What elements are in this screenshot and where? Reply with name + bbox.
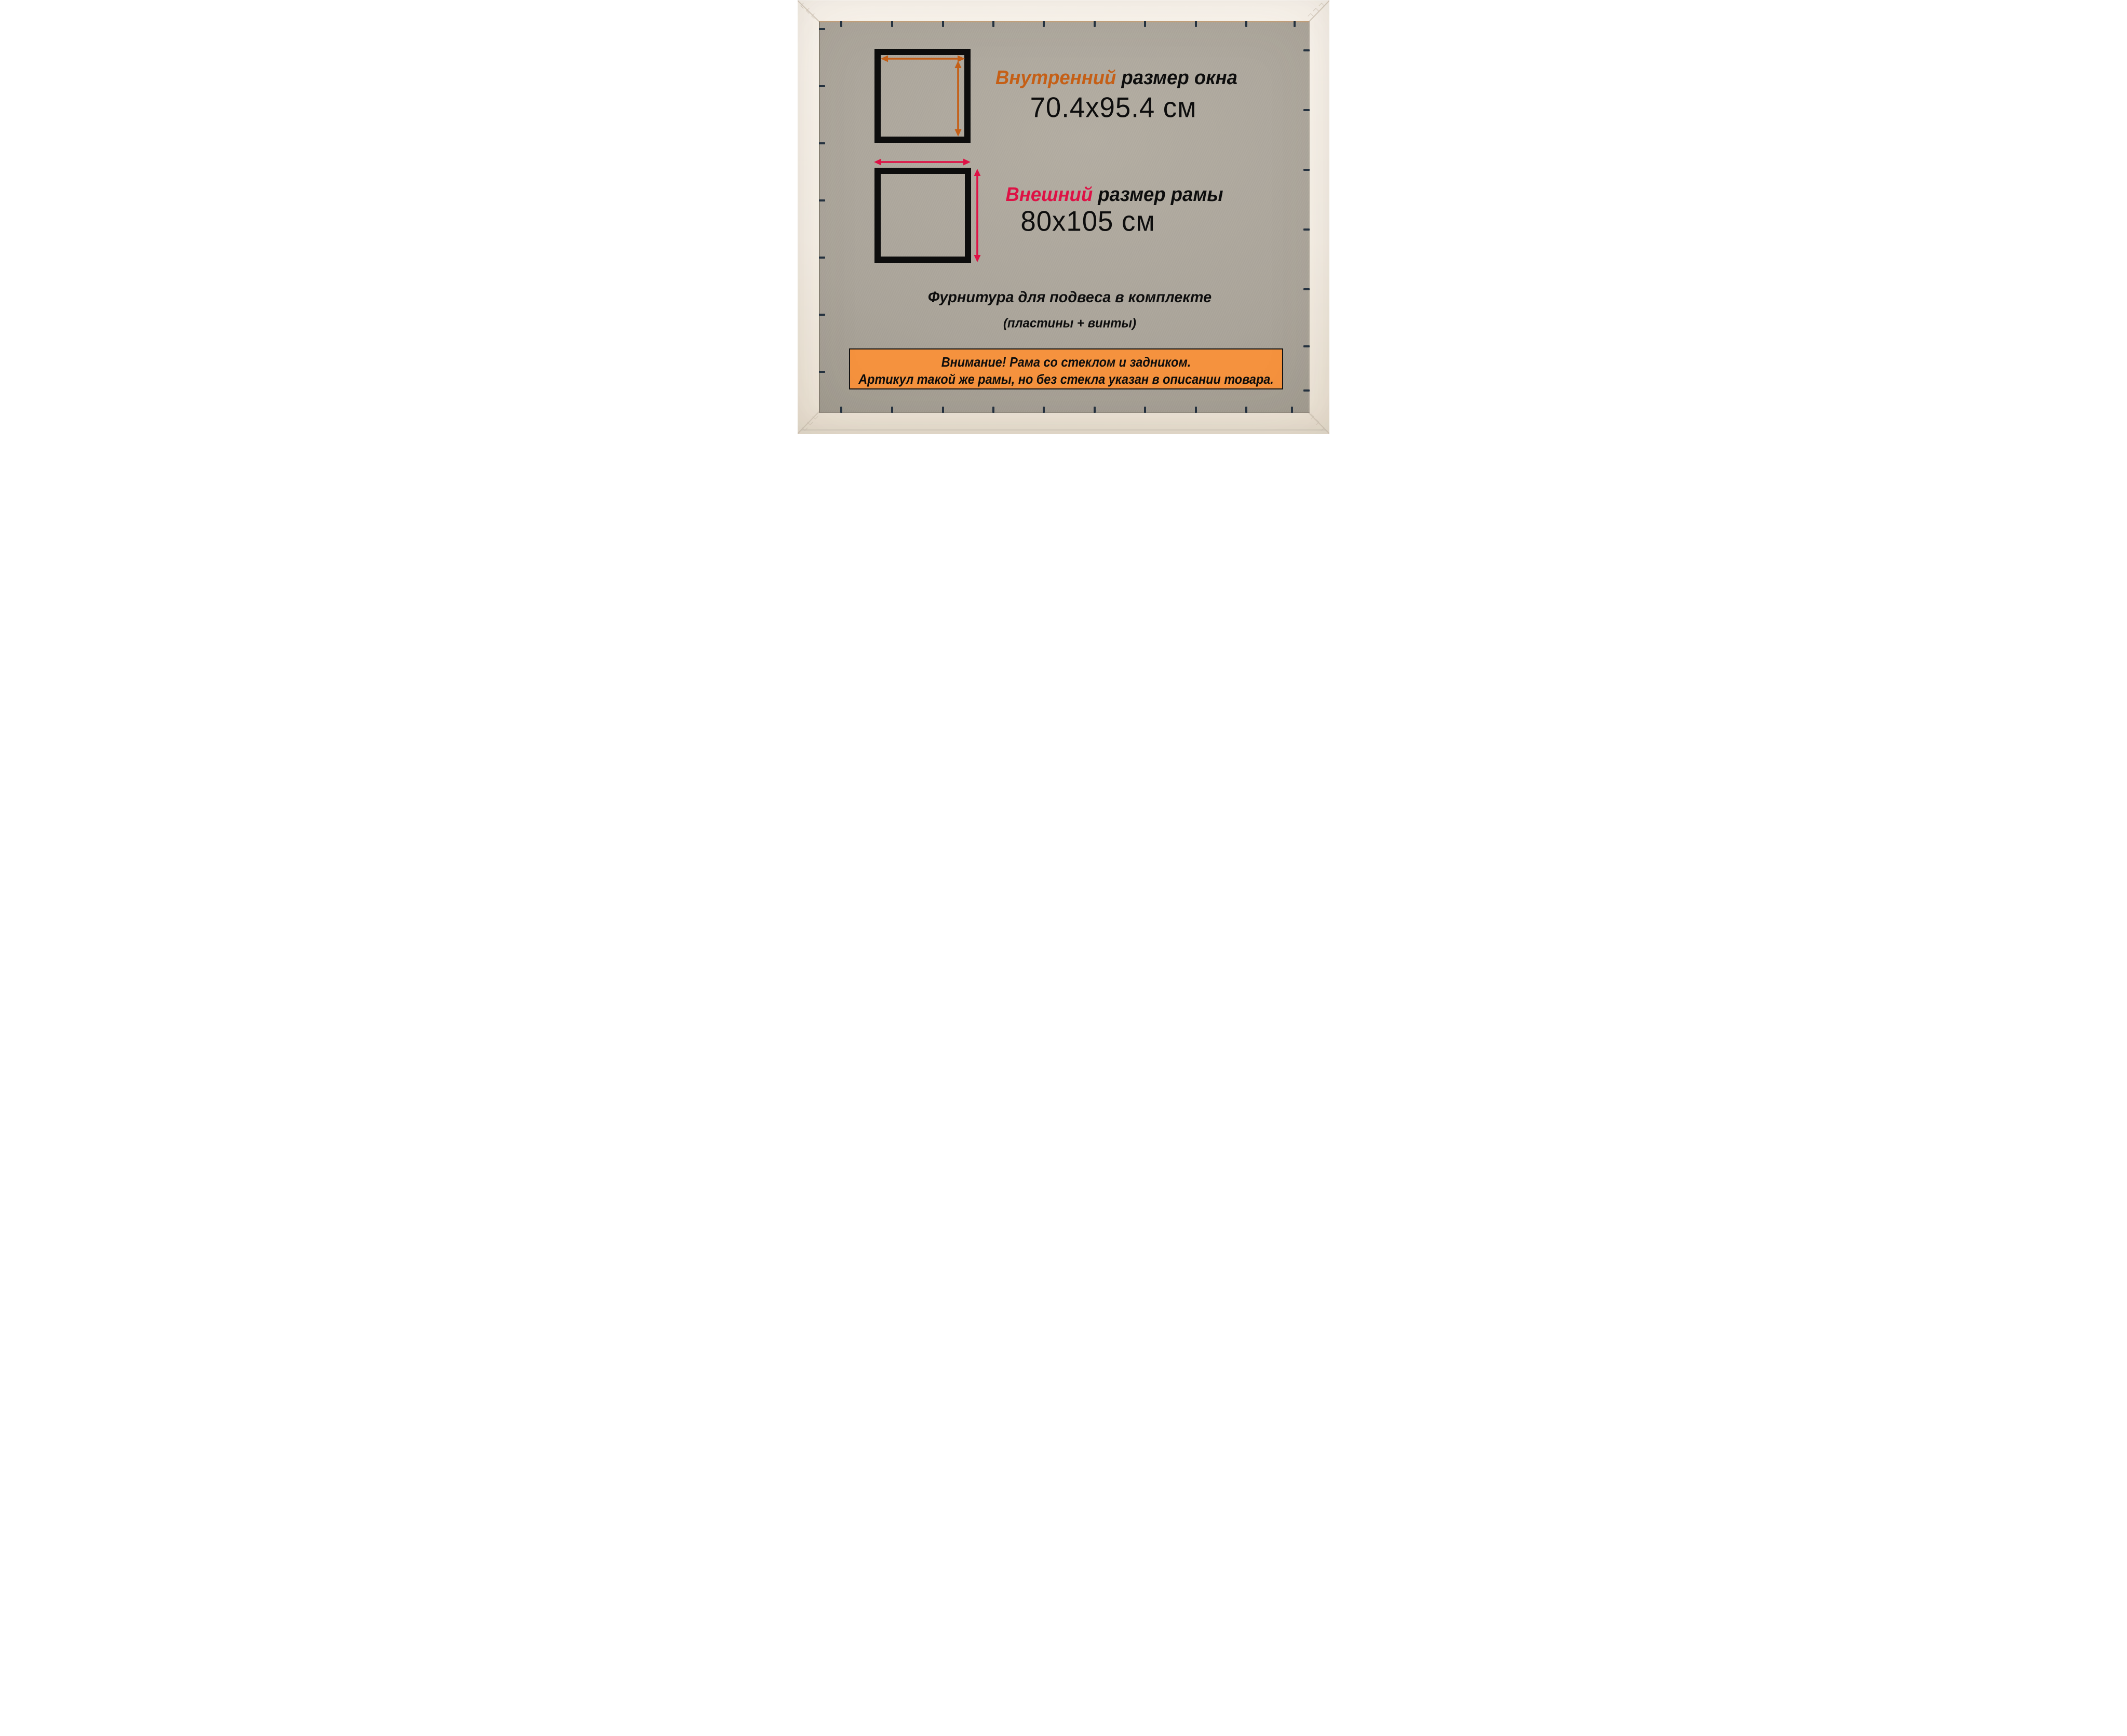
staple-mark bbox=[819, 371, 825, 373]
corner-staple-mark bbox=[1318, 3, 1324, 8]
inner-width-arrow-icon bbox=[880, 54, 965, 63]
frame-back-product-photo: Внутренний размер окна 70.4x95.4 см Внеш… bbox=[798, 0, 1329, 434]
outer-size-label-rest: размер рамы bbox=[1093, 184, 1223, 206]
outer-height-arrow-icon bbox=[973, 168, 982, 263]
frame-outer-edge-highlight bbox=[798, 0, 1329, 1]
corner-staple-mark bbox=[1313, 419, 1319, 425]
inner-size-label: Внутренний размер окна bbox=[995, 68, 1237, 88]
staple-mark bbox=[1303, 228, 1310, 231]
staple-mark bbox=[1303, 169, 1310, 171]
miter-seam-top-right bbox=[1309, 0, 1329, 21]
staple-mark bbox=[840, 407, 842, 413]
staple-mark bbox=[942, 21, 944, 27]
inner-height-arrow-icon bbox=[953, 60, 963, 137]
warning-banner-line1: Внимание! Рама со стеклом и задником. bbox=[941, 355, 1191, 369]
corner-staple-mark bbox=[807, 419, 813, 425]
inner-size-value: 70.4x95.4 см bbox=[1030, 93, 1197, 122]
staple-mark bbox=[891, 407, 893, 413]
staple-mark bbox=[1294, 21, 1296, 27]
staple-mark bbox=[819, 257, 825, 259]
staple-mark bbox=[891, 21, 893, 27]
inner-size-label-accent: Внутренний bbox=[995, 67, 1116, 89]
staple-mark bbox=[1043, 21, 1045, 27]
staple-mark bbox=[819, 314, 825, 316]
staple-mark bbox=[992, 21, 994, 27]
staple-mark bbox=[1303, 288, 1310, 290]
staple-mark bbox=[1043, 407, 1045, 413]
staple-mark bbox=[819, 142, 825, 144]
staple-mark bbox=[1303, 389, 1310, 392]
staple-mark bbox=[1195, 407, 1197, 413]
staple-mark bbox=[819, 28, 825, 30]
corner-staple-mark bbox=[1313, 8, 1318, 14]
outer-size-label: Внешний размер рамы bbox=[1006, 185, 1223, 205]
staple-mark bbox=[1303, 345, 1310, 347]
staple-mark bbox=[1144, 407, 1146, 413]
staple-mark bbox=[1303, 49, 1310, 51]
outer-size-value: 80x105 см bbox=[1020, 207, 1155, 236]
staple-mark bbox=[942, 407, 944, 413]
outer-size-label-accent: Внешний bbox=[1006, 184, 1093, 206]
staple-mark bbox=[992, 407, 994, 413]
staple-mark bbox=[1245, 21, 1247, 27]
staple-mark bbox=[1303, 109, 1310, 111]
staple-mark bbox=[840, 21, 842, 27]
staple-mark bbox=[1094, 21, 1096, 27]
staple-mark bbox=[1195, 21, 1197, 27]
corner-staple-mark bbox=[812, 413, 818, 419]
inner-size-label-rest: размер окна bbox=[1116, 67, 1237, 89]
staple-mark bbox=[1094, 407, 1096, 413]
corner-staple-mark bbox=[1308, 413, 1314, 419]
hardware-note-line2: (пластины + винты) bbox=[1003, 317, 1136, 330]
outer-frame-square bbox=[874, 168, 971, 263]
hardware-note-line1: Фурнитура для подвеса в комплекте bbox=[928, 290, 1211, 305]
outer-width-arrow-icon bbox=[873, 157, 971, 167]
staple-mark bbox=[819, 199, 825, 201]
staple-mark bbox=[1144, 21, 1146, 27]
warning-banner: Внимание! Рама со стеклом и задником. Ар… bbox=[849, 348, 1283, 389]
warning-banner-line2: Артикул такой же рамы, но без стекла ука… bbox=[858, 372, 1274, 386]
frame-bottom-shadow-line bbox=[801, 429, 1326, 430]
staple-mark bbox=[819, 85, 825, 87]
staple-mark bbox=[1245, 407, 1247, 413]
staple-mark bbox=[1291, 407, 1293, 413]
